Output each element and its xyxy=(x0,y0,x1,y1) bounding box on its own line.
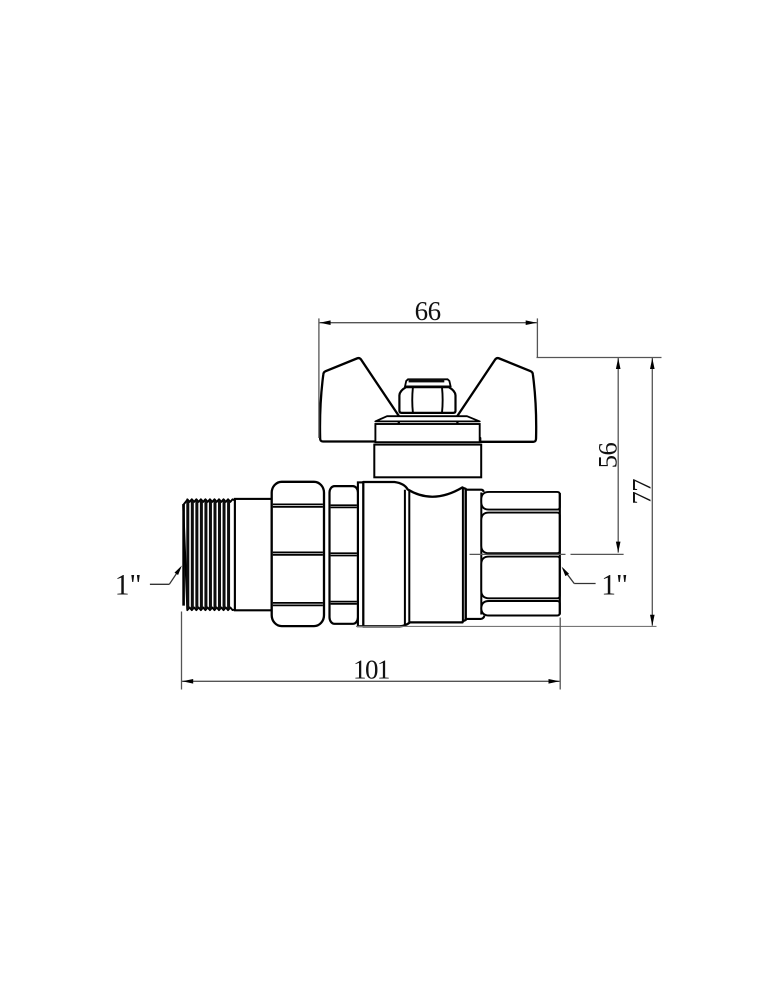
svg-text:1": 1" xyxy=(115,569,142,601)
svg-text:77: 77 xyxy=(627,479,657,505)
svg-text:101: 101 xyxy=(353,655,389,685)
svg-text:66: 66 xyxy=(415,296,441,326)
svg-text:1": 1" xyxy=(601,569,628,601)
svg-text:56: 56 xyxy=(593,443,623,469)
